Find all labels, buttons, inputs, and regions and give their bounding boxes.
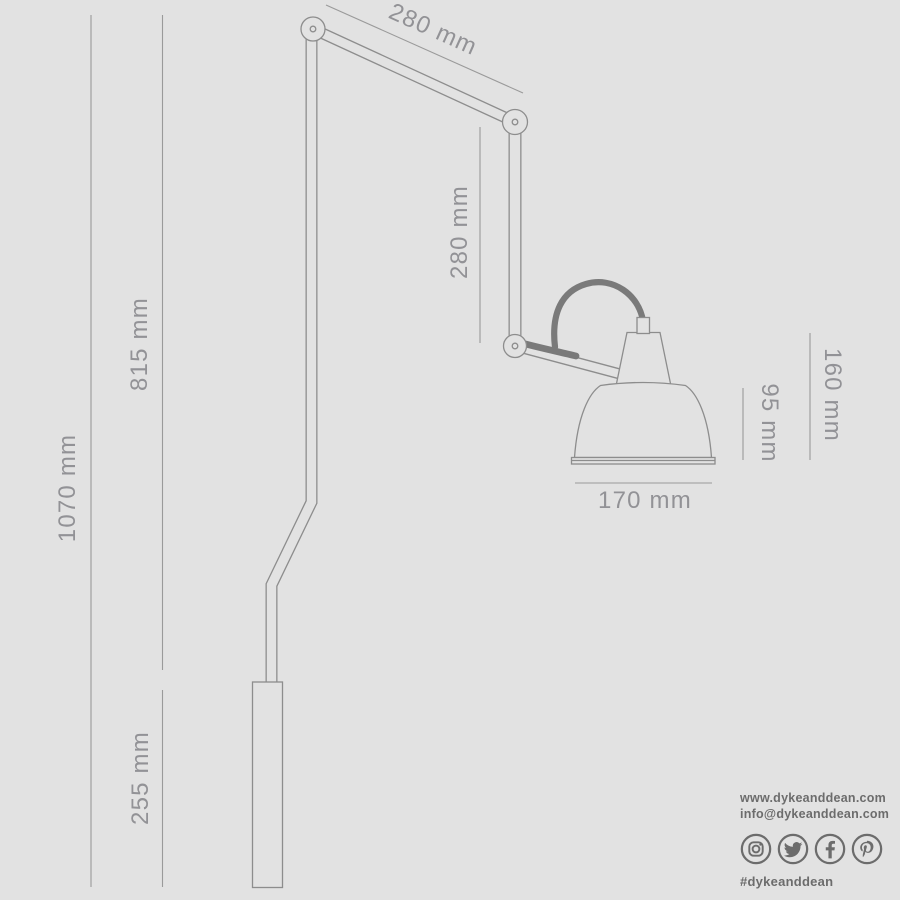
dim-label-head-height: 160 mm bbox=[818, 348, 846, 442]
pinterest-icon bbox=[851, 833, 883, 865]
lamp-shade bbox=[575, 383, 712, 458]
footer-branding: www.dykeanddean.com info@dykeanddean.com bbox=[740, 791, 889, 889]
hashtag-text: #dykeanddean bbox=[740, 874, 889, 889]
head-joint bbox=[504, 335, 527, 358]
instagram-icon bbox=[740, 833, 772, 865]
head-arm bbox=[515, 346, 620, 374]
facebook-icon bbox=[814, 833, 846, 865]
elbow-joint bbox=[503, 110, 528, 135]
shade-rim bbox=[572, 458, 716, 465]
diagram-canvas: 1070 mm 815 mm 255 mm 280 mm 280 mm 160 … bbox=[0, 0, 900, 900]
twitter-icon bbox=[777, 833, 809, 865]
wall-pivot-joint bbox=[301, 17, 325, 41]
social-icons-row bbox=[740, 833, 889, 865]
dim-label-forearm: 280 mm bbox=[446, 185, 474, 279]
dim-label-shade-height: 95 mm bbox=[755, 383, 783, 462]
dim-label-shade-diameter: 170 mm bbox=[598, 487, 692, 515]
wall-bracket-tube bbox=[253, 682, 283, 888]
email-text: info@dykeanddean.com bbox=[740, 807, 889, 823]
dim-label-bracket-height: 255 mm bbox=[127, 731, 155, 825]
dim-label-stem-height: 815 mm bbox=[126, 297, 154, 391]
lamp-socket-cone bbox=[616, 333, 671, 387]
website-text: www.dykeanddean.com bbox=[740, 791, 889, 807]
cable-nipple bbox=[637, 318, 650, 334]
wall-stem bbox=[272, 30, 312, 700]
dim-label-overall-height: 1070 mm bbox=[54, 434, 82, 542]
